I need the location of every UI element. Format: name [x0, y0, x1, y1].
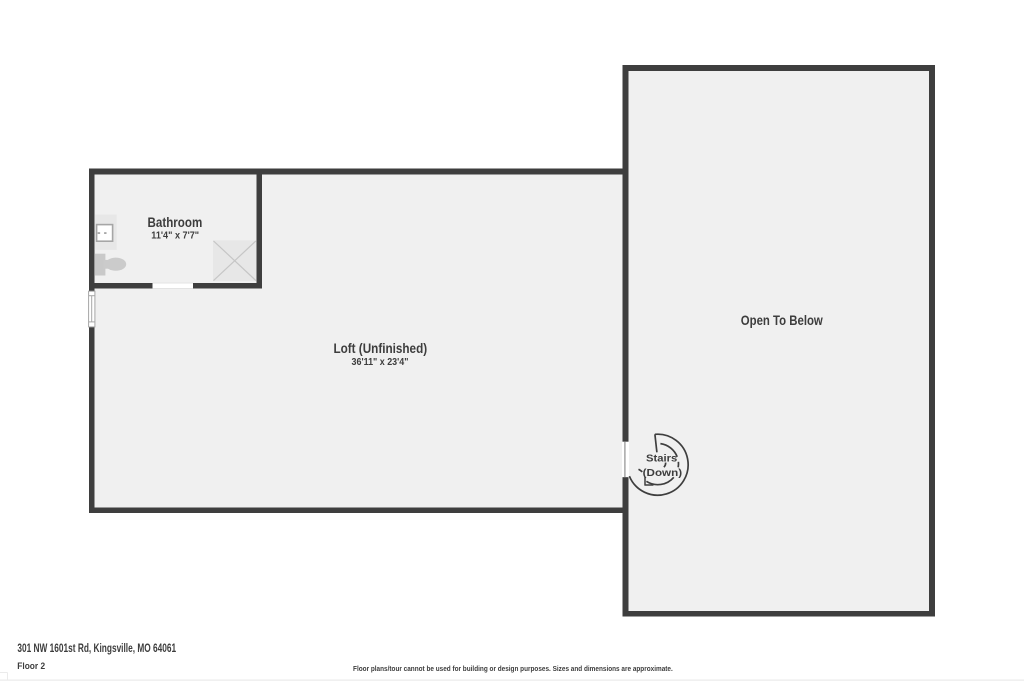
svg-text:Stairs: Stairs: [646, 452, 677, 464]
svg-text:Floor 2: Floor 2: [17, 661, 45, 671]
svg-text:11'4" x 7'7": 11'4" x 7'7": [151, 231, 199, 242]
svg-text:Bathroom: Bathroom: [148, 214, 203, 230]
svg-text:301 NW 1601st Rd, Kingsville,: 301 NW 1601st Rd, Kingsville, MO 64061: [17, 643, 176, 655]
svg-text:Loft (Unfinished): Loft (Unfinished): [333, 340, 427, 356]
svg-text:Open To Below: Open To Below: [741, 312, 823, 328]
svg-text:Floor plans/tour cannot be use: Floor plans/tour cannot be used for buil…: [353, 664, 673, 673]
svg-text:(Down): (Down): [643, 468, 682, 479]
svg-text:36'11" x 23'4": 36'11" x 23'4": [352, 356, 409, 368]
